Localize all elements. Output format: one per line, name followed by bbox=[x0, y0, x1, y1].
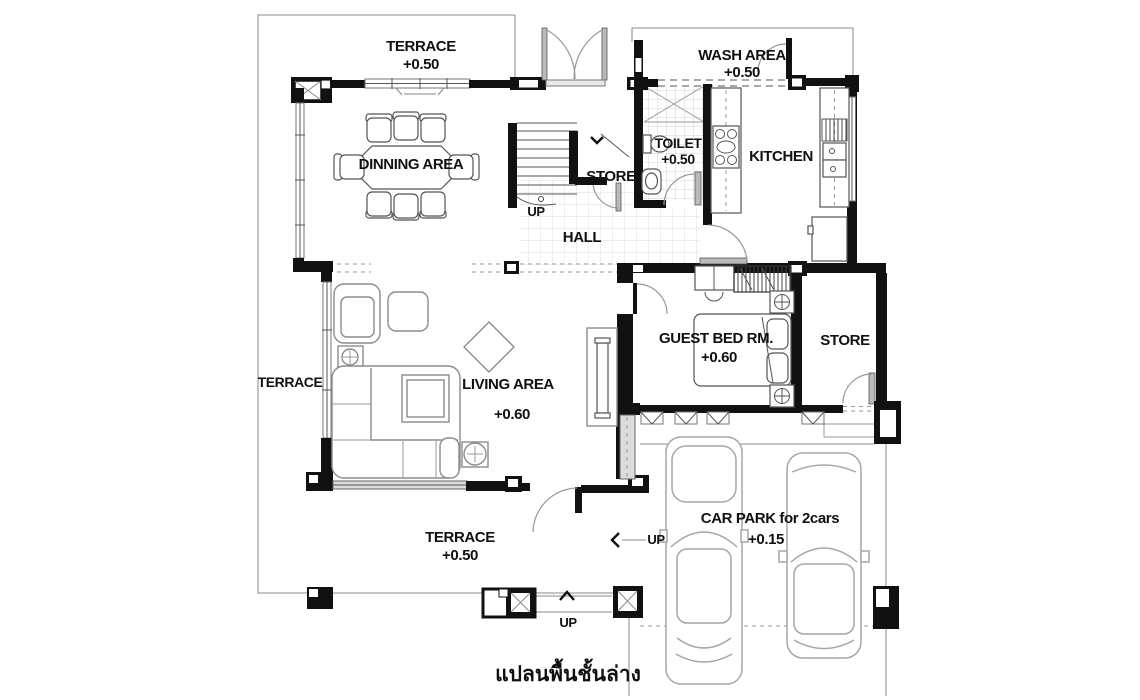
stair-direction-mark bbox=[591, 137, 603, 143]
hall-east-glazing bbox=[620, 415, 635, 479]
bedroom-awning-windows bbox=[641, 412, 824, 424]
label-up-entry: UP bbox=[559, 615, 577, 630]
label-up-stairs: UP bbox=[527, 204, 545, 219]
car-mirror bbox=[779, 551, 787, 562]
entry-door-leaf bbox=[575, 487, 582, 513]
plan-caption: แปลนพื้นชั้นล่าง bbox=[495, 658, 641, 686]
label-living-level: +0.60 bbox=[494, 406, 530, 423]
corridor-tiles bbox=[636, 208, 700, 264]
label-terrace-bottom: TERRACE bbox=[425, 529, 495, 546]
kitchen-door-leaf bbox=[700, 258, 747, 264]
store-steps bbox=[824, 415, 877, 437]
car-mirror bbox=[741, 530, 748, 542]
sofa-arm bbox=[440, 438, 459, 478]
label-guest-bedroom: GUEST BED RM. bbox=[659, 330, 773, 347]
stove bbox=[822, 119, 847, 141]
store-door-leaf bbox=[869, 373, 875, 404]
label-toilet: TOILET bbox=[654, 135, 702, 151]
car-2 bbox=[779, 453, 869, 658]
entry-door-swing bbox=[533, 488, 577, 532]
up-arrow-carpark bbox=[612, 533, 619, 547]
label-wash-area: WASH AREA bbox=[698, 47, 786, 64]
side-table bbox=[388, 292, 428, 331]
car-mirror bbox=[861, 551, 869, 562]
floor-plan-canvas: TERRACE +0.50 WASH AREA +0.50 DINNING AR… bbox=[0, 0, 1140, 700]
label-dining: DINNING AREA bbox=[359, 156, 464, 173]
label-guest-bedroom-level: +0.60 bbox=[701, 349, 737, 366]
main-entry-threshold bbox=[546, 80, 605, 86]
car-1 bbox=[660, 437, 748, 684]
label-store-right: STORE bbox=[820, 332, 870, 349]
understair-store-door-leaf bbox=[616, 183, 621, 211]
floor-plan-svg: TERRACE +0.50 WASH AREA +0.50 DINNING AR… bbox=[0, 0, 1140, 700]
label-wash-area-level: +0.50 bbox=[724, 64, 760, 81]
label-terrace-left: TERRACE bbox=[258, 374, 323, 390]
entry-double-door-swing-right bbox=[574, 30, 602, 79]
kitchen-door-swing bbox=[708, 225, 747, 260]
label-terrace-top: TERRACE bbox=[386, 38, 456, 55]
label-car-park: CAR PARK for 2cars bbox=[701, 510, 839, 527]
store-door-swing bbox=[843, 374, 872, 403]
pouf bbox=[464, 322, 514, 372]
label-terrace-bottom-level: +0.50 bbox=[442, 547, 478, 564]
entry-double-door-swing-left bbox=[547, 30, 575, 79]
toilet-door-leaf bbox=[695, 172, 701, 205]
tv bbox=[597, 343, 608, 413]
wc-tank bbox=[643, 135, 651, 153]
label-store-mid: STORE bbox=[586, 168, 636, 185]
sink-2 bbox=[823, 160, 846, 177]
label-up-carpark: UP bbox=[647, 532, 665, 547]
refrigerator bbox=[812, 217, 847, 261]
bedroom-door-swing bbox=[637, 284, 667, 314]
label-toilet-level: +0.50 bbox=[661, 151, 695, 167]
label-terrace-top-level: +0.50 bbox=[403, 56, 439, 73]
kitchen-fixtures bbox=[711, 88, 849, 261]
stool bbox=[705, 292, 723, 301]
label-car-park-level: +0.15 bbox=[748, 531, 784, 548]
label-hall: HALL bbox=[563, 229, 602, 246]
label-kitchen: KITCHEN bbox=[749, 148, 813, 165]
wash-area-wall-stub bbox=[786, 38, 792, 79]
label-living: LIVING AREA bbox=[462, 376, 554, 393]
arrows bbox=[560, 533, 619, 600]
